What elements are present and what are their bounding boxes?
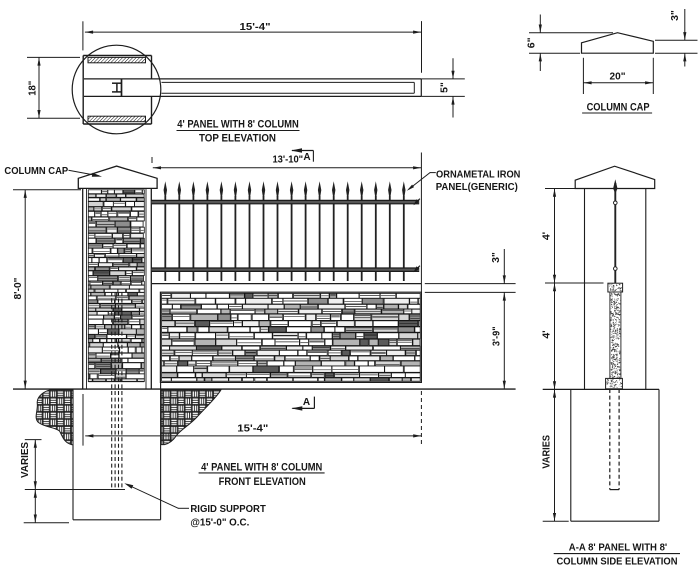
svg-text:3'-9": 3'-9" [491,326,503,346]
svg-text:COLUMN CAP: COLUMN CAP [587,101,650,113]
svg-text:RIGID SUPPORT: RIGID SUPPORT [190,503,266,515]
svg-text:18": 18" [26,81,38,96]
svg-text:4': 4' [541,330,553,338]
svg-text:3": 3" [669,10,681,21]
svg-text:4': 4' [541,232,553,240]
svg-text:4' PANEL WITH 8' COLUMN: 4' PANEL WITH 8' COLUMN [177,119,299,131]
svg-text:15'-4": 15'-4" [240,21,271,33]
svg-text:@15'-0" O.C.: @15'-0" O.C. [190,516,249,528]
svg-text:FRONT ELEVATION: FRONT ELEVATION [219,476,306,488]
svg-text:15'-4": 15'-4" [237,422,268,434]
svg-text:COLUMN SIDE ELEVATION: COLUMN SIDE ELEVATION [557,555,678,567]
svg-text:8'-0": 8'-0" [12,277,24,299]
svg-text:PANEL(GENERIC): PANEL(GENERIC) [436,181,518,193]
svg-text:A-A 8' PANEL WITH 8': A-A 8' PANEL WITH 8' [569,542,667,554]
svg-text:A: A [303,397,310,408]
svg-text:VARIES: VARIES [541,435,553,469]
svg-text:5": 5" [438,82,450,93]
svg-text:VARIES: VARIES [19,442,31,478]
svg-text:TOP ELEVATION: TOP ELEVATION [199,132,276,144]
svg-text:6": 6" [525,37,537,48]
svg-text:20": 20" [610,70,626,82]
svg-text:COLUMN CAP: COLUMN CAP [4,165,68,177]
svg-text:ORNAMETAL IRON: ORNAMETAL IRON [436,168,520,180]
svg-text:A: A [303,152,310,163]
svg-text:4' PANEL WITH 8' COLUMN: 4' PANEL WITH 8' COLUMN [201,462,322,474]
svg-text:3": 3" [490,252,502,263]
svg-text:13'-10": 13'-10" [272,153,303,165]
